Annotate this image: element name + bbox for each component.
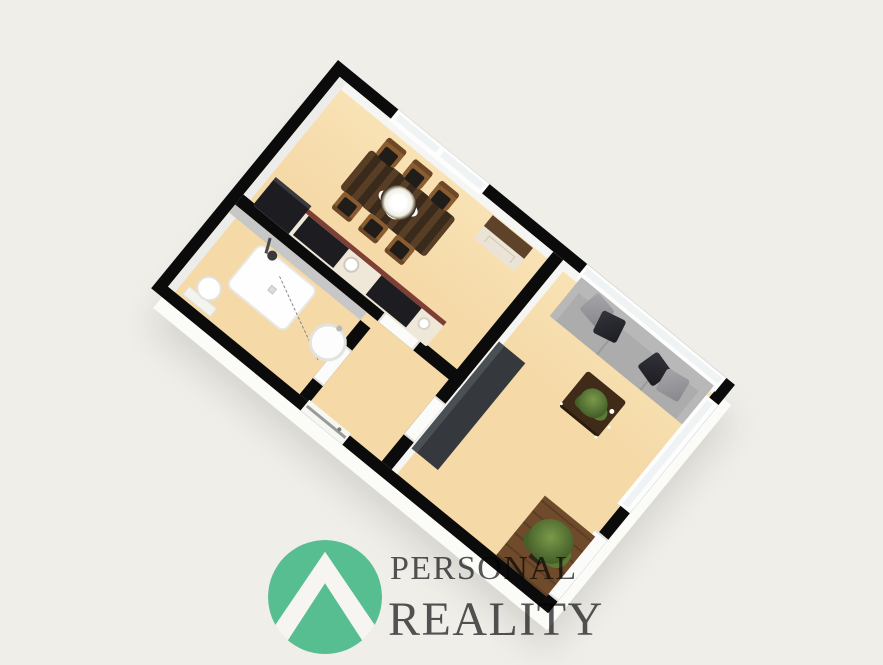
brand-name-line1: PERSONAL [390, 550, 578, 588]
brand-name-line2: REALITY [388, 592, 604, 647]
chair-seat [389, 239, 410, 260]
brand-logo-icon [266, 538, 384, 656]
page-background: PERSONAL REALITY [0, 0, 883, 665]
shower-drain [267, 285, 277, 295]
chair-seat [336, 196, 357, 217]
floorplan [151, 60, 735, 613]
chair-seat [363, 218, 384, 239]
